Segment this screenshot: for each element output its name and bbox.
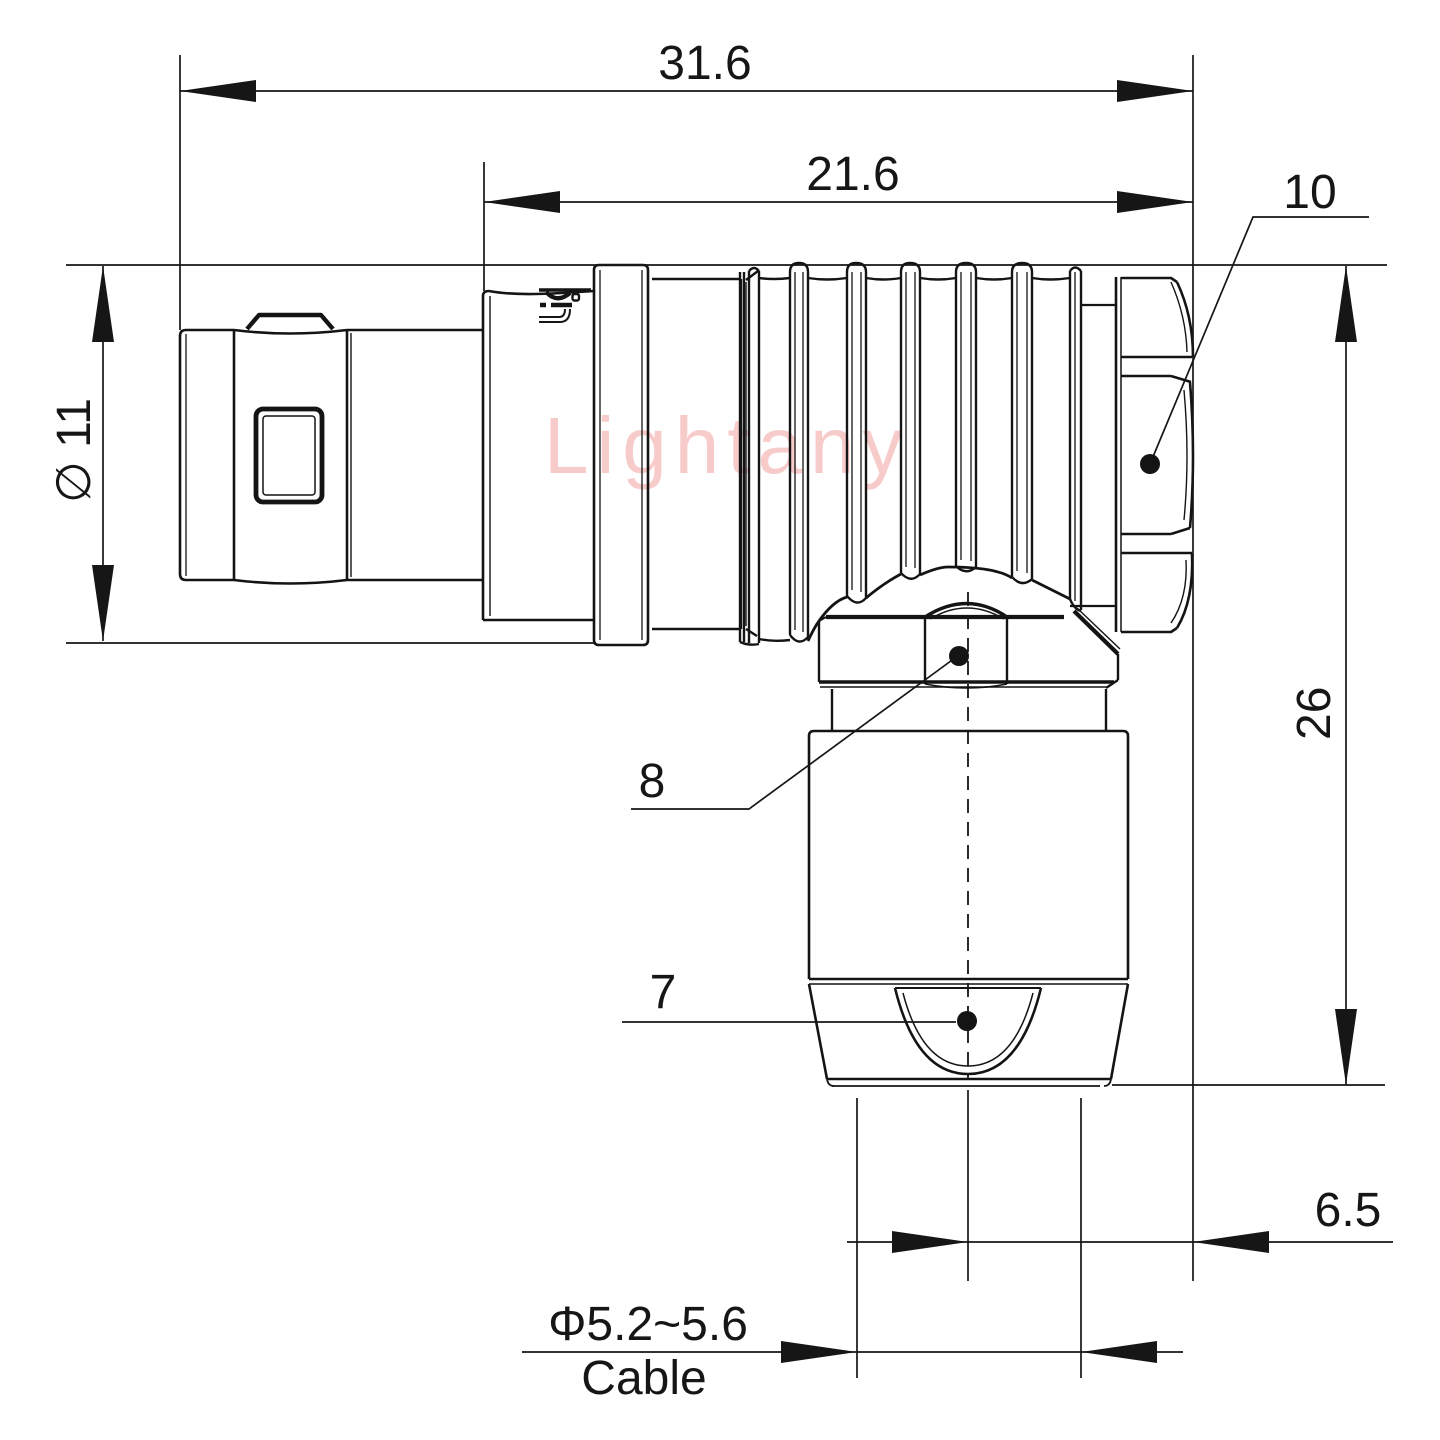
svg-text:Lightany: Lightany <box>544 401 910 490</box>
svg-text:∅ 11: ∅ 11 <box>48 398 101 503</box>
svg-text:7: 7 <box>650 966 677 1019</box>
svg-text:10: 10 <box>1283 166 1336 219</box>
svg-text:8: 8 <box>639 755 666 808</box>
svg-text:21.6: 21.6 <box>806 148 899 201</box>
svg-text:6.5: 6.5 <box>1315 1184 1382 1237</box>
svg-text:Cable: Cable <box>581 1352 706 1405</box>
svg-text:31.6: 31.6 <box>658 37 751 90</box>
svg-text:Φ5.2~5.6: Φ5.2~5.6 <box>548 1298 748 1351</box>
svg-text:26: 26 <box>1288 687 1341 740</box>
